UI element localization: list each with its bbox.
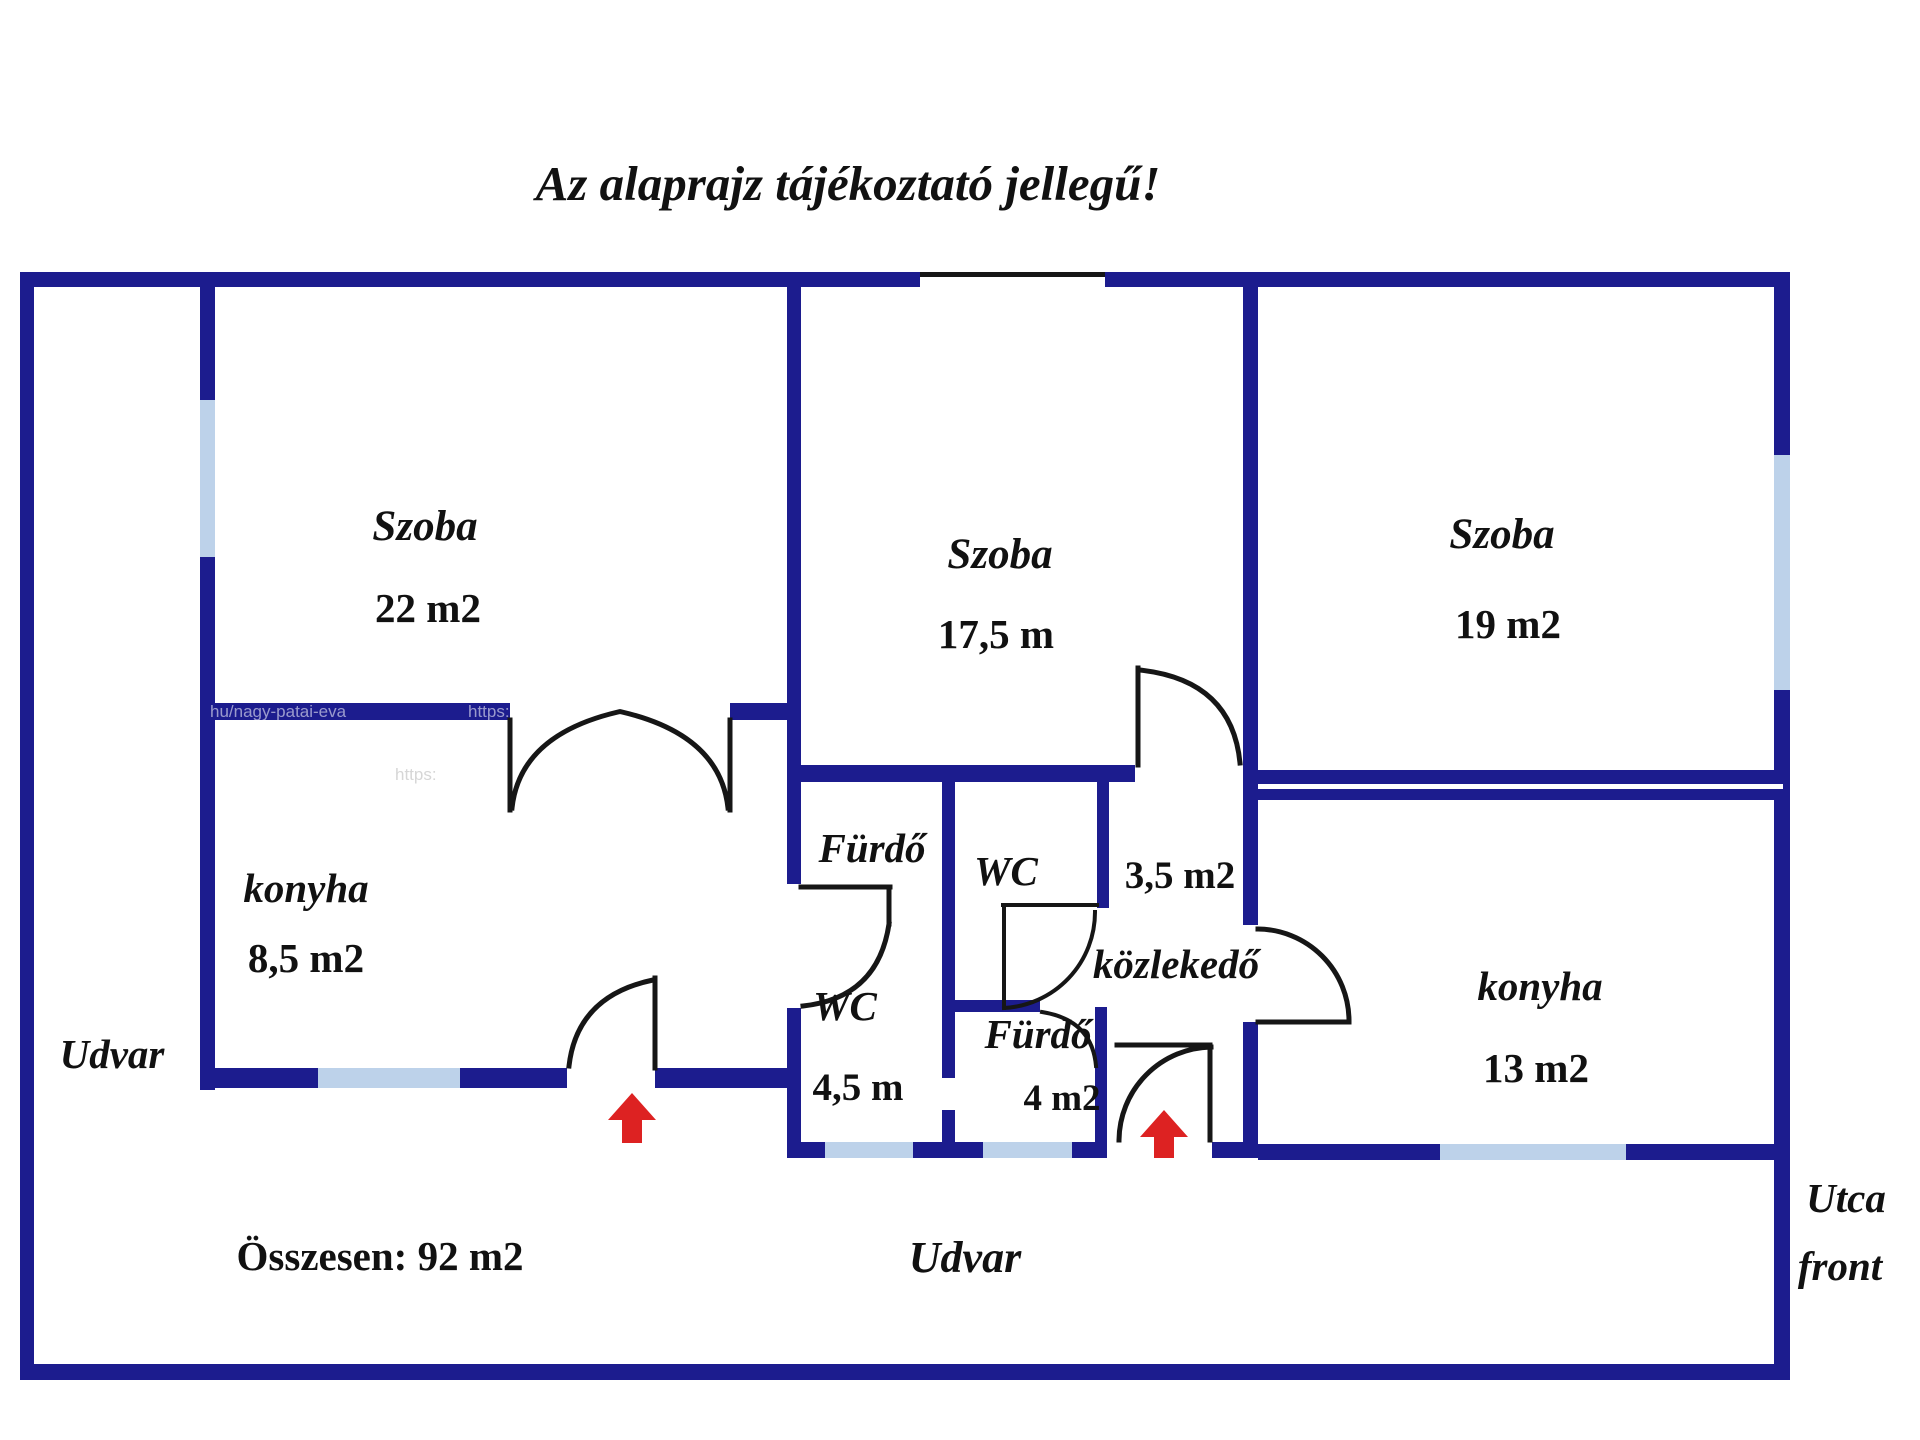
label-wc-lower-area: 4,5 m <box>813 1066 904 1109</box>
konyha85-bottom-wall-a <box>200 1068 318 1088</box>
furdo4-bottom <box>1072 1142 1107 1158</box>
building-wall-left <box>200 272 215 1090</box>
top-window-line <box>920 272 1105 277</box>
wall-below-szoba19-a <box>1243 770 1783 784</box>
outer-wall-bottom <box>20 1364 1790 1380</box>
wall-wcupper-right <box>1097 765 1109 908</box>
label-szoba175-name: Szoba <box>947 531 1052 578</box>
label-furdo-upper: Fürdő <box>817 825 928 871</box>
entry-bottom-stub <box>1212 1142 1258 1158</box>
watermark-text: hu/nagy-patai-eva <box>210 702 347 721</box>
wc45-bottom-a <box>787 1142 825 1158</box>
outer-wall-right <box>1774 272 1790 1380</box>
window-left-szoba22 <box>200 400 215 557</box>
label-furdo-lower-area: 4 m2 <box>1023 1078 1100 1119</box>
konyha13-bottom-a <box>1258 1144 1440 1160</box>
label-wc-upper: WC <box>974 848 1038 894</box>
label-szoba19-name: Szoba <box>1449 511 1554 558</box>
window-furdo4 <box>983 1142 1072 1158</box>
konyha85-bottom-wall-b <box>460 1068 567 1088</box>
window-wc45 <box>825 1142 913 1158</box>
floor-plan-drawing: Az alaprajz tájékoztató jellegű! <box>0 0 1920 1440</box>
floor-plan-page: Az alaprajz tájékoztató jellegű! <box>0 0 1920 1440</box>
label-kozlekedo: közlekedő <box>1093 941 1262 987</box>
entrance-arrow-icon <box>1140 1110 1188 1158</box>
label-konyha13-name: konyha <box>1477 963 1602 1009</box>
wall-central-upper <box>787 287 801 884</box>
door-symbols <box>510 668 1349 1140</box>
wall-below-szoba19-gapline <box>1258 784 1783 789</box>
wall-konyha13-left-a <box>1243 772 1258 925</box>
wall-bath-column-a <box>942 765 955 1078</box>
konyha85-entry-arc <box>569 980 653 1066</box>
label-furdo-lower-name: Fürdő <box>983 1011 1094 1057</box>
wall-below-szoba19-b <box>1258 789 1783 800</box>
window-konyha13 <box>1440 1144 1626 1160</box>
label-udvar-bottom: Udvar <box>909 1233 1022 1282</box>
window-right-szoba19 <box>1774 455 1790 690</box>
label-corridor-area: 3,5 m2 <box>1125 854 1236 897</box>
entrance-arrow-icon <box>608 1093 656 1143</box>
label-konyha85-area: 8,5 m2 <box>248 935 364 981</box>
label-szoba22-area: 22 m2 <box>375 585 481 631</box>
plan-disclaimer-title: Az alaprajz tájékoztató jellegű! <box>533 156 1161 211</box>
outer-wall-top <box>20 272 1790 287</box>
wcupper-door-arc <box>1004 912 1095 1008</box>
szoba175-door-arc <box>1140 670 1240 763</box>
label-szoba175-area: 17,5 m <box>938 611 1054 657</box>
wc45-bottom-b <box>913 1142 983 1158</box>
label-konyha85-name: konyha <box>243 865 368 911</box>
label-total-area: Összesen: 92 m2 <box>237 1233 524 1279</box>
konyha13-bottom-b <box>1626 1144 1783 1160</box>
label-szoba19-area: 19 m2 <box>1455 601 1561 647</box>
double-door-arc-right <box>622 712 728 808</box>
label-utca-line2: front <box>1798 1243 1884 1289</box>
label-szoba22-name: Szoba <box>372 503 477 550</box>
window-konyha85 <box>318 1068 460 1088</box>
double-door-arc-left <box>512 712 618 808</box>
wall-below-szoba175 <box>801 765 1135 782</box>
konyha85-bottom-wall-c <box>655 1068 801 1088</box>
label-konyha13-area: 13 m2 <box>1483 1045 1589 1091</box>
wall-konyha13-left-b <box>1243 1022 1258 1158</box>
konyha13-door-arc <box>1258 929 1349 1020</box>
watermark-text: https: <box>468 702 510 721</box>
room-labels: Szoba 22 m2 Szoba 17,5 m Szoba 19 m2 kon… <box>243 503 1602 1119</box>
label-udvar-left: Udvar <box>60 1031 166 1077</box>
label-utca-line1: Utca <box>1806 1175 1886 1221</box>
wall-szoba175-szoba19 <box>1243 287 1258 772</box>
watermark-text: https: <box>395 765 437 784</box>
label-wc-lower-name: WC <box>813 983 877 1029</box>
outer-wall-left <box>20 272 34 1380</box>
